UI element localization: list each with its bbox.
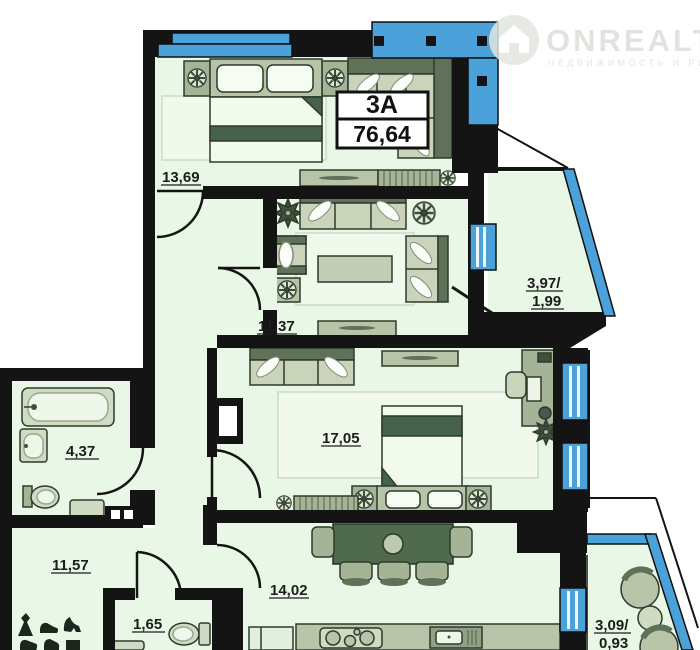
apartment-info-box: 3А 76,64 <box>337 91 428 148</box>
double-bed <box>376 406 468 511</box>
wall <box>562 348 588 363</box>
room-area-label: 17,05 <box>322 430 360 447</box>
room-area-label: 1,99 <box>532 293 561 310</box>
floor-corridor-lower <box>155 348 207 528</box>
double-bed <box>210 59 322 162</box>
floorplan-svg: 13,69 11,37 3,97/ 1,99 4,37 17,05 11,57 … <box>0 0 700 650</box>
wall <box>562 490 588 512</box>
kitchen-sink <box>430 627 482 648</box>
wall <box>562 420 588 443</box>
balcony-glazing <box>468 58 498 125</box>
flower-icon <box>188 69 206 87</box>
watermark-brand: ONREALT <box>546 23 700 58</box>
shaft-opening <box>219 406 237 436</box>
wall <box>0 368 143 381</box>
wall <box>217 510 560 523</box>
chair <box>312 527 334 557</box>
wall <box>103 588 135 600</box>
room-area-label: 14,02 <box>270 582 308 599</box>
floorplan-image: 13,69 11,37 3,97/ 1,99 4,37 17,05 11,57 … <box>0 0 700 650</box>
house-logo-icon <box>489 15 539 65</box>
room-area-label: 3,97/ <box>527 275 561 292</box>
shaft-opening <box>124 510 133 519</box>
watermark-tagline: НЕДВИЖИМОСТЬ И РИЭЛТОРЫ <box>548 58 700 68</box>
window <box>560 588 586 632</box>
wall <box>455 125 498 173</box>
tv-stand <box>318 321 396 336</box>
coffee-table <box>318 256 392 282</box>
window <box>158 44 292 57</box>
chair <box>450 527 472 557</box>
window <box>172 33 290 44</box>
room-area-label: 11,37 <box>258 318 295 335</box>
window <box>562 443 588 490</box>
cabinet <box>70 500 104 517</box>
room-area-label: 4,37 <box>66 443 95 460</box>
room-area-label: 0,93 <box>599 635 628 650</box>
stove <box>320 628 382 648</box>
toilet <box>169 623 210 645</box>
sink <box>112 641 144 650</box>
apartment-type: 3А <box>366 91 398 119</box>
wall <box>0 368 12 650</box>
flower-icon <box>469 490 487 508</box>
bathtub <box>22 388 114 426</box>
loggia-glazing <box>587 534 651 544</box>
tv-stand <box>382 351 458 366</box>
room-area-label: 13,69 <box>162 169 200 186</box>
wardrobe <box>378 170 440 187</box>
flower-icon <box>278 281 296 299</box>
room-area-label: 1,65 <box>133 616 162 633</box>
flower-icon <box>277 496 291 510</box>
wall <box>263 199 277 268</box>
desk-chair <box>506 372 526 398</box>
window <box>562 363 588 420</box>
wardrobe <box>294 496 358 511</box>
wall <box>560 632 586 650</box>
side-table-icon <box>413 202 435 224</box>
wall <box>560 553 586 588</box>
wall <box>130 381 155 448</box>
wall <box>212 595 243 650</box>
wall <box>484 312 606 348</box>
sink <box>20 429 47 462</box>
shaft-opening <box>111 510 120 519</box>
wall <box>203 186 480 199</box>
shoe-box-icon <box>66 640 80 650</box>
chairs-row <box>340 562 448 586</box>
fridge <box>249 627 293 650</box>
watermark: ONREALT НЕДВИЖИМОСТЬ И РИЭЛТОРЫ <box>489 15 700 68</box>
wall <box>203 505 217 545</box>
room-area-label: 11,57 <box>52 557 89 574</box>
room-area-label: 3,09/ <box>595 617 629 634</box>
wall <box>143 30 155 381</box>
flower-icon <box>326 69 344 87</box>
wall <box>103 600 115 650</box>
toilet <box>23 486 59 508</box>
apartment-total-area: 76,64 <box>353 121 411 147</box>
dining-table <box>333 524 453 564</box>
